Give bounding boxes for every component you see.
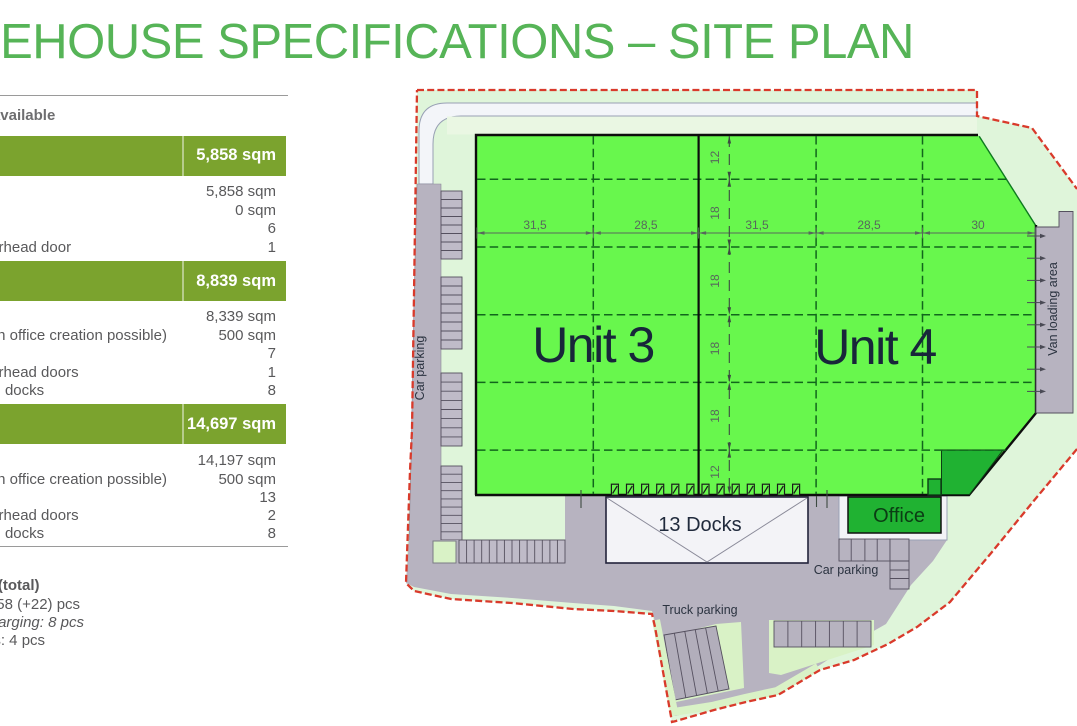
svg-text:Truck parking: Truck parking xyxy=(662,603,737,617)
svg-text:28,5: 28,5 xyxy=(634,218,658,232)
svg-text:30: 30 xyxy=(971,218,985,232)
svg-text:Office: Office xyxy=(873,505,925,527)
svg-text:12: 12 xyxy=(708,151,722,165)
svg-text:Van loading area: Van loading area xyxy=(1046,262,1060,356)
svg-text:18: 18 xyxy=(708,409,722,423)
svg-text:Unit 4: Unit 4 xyxy=(814,319,936,375)
svg-text:31,5: 31,5 xyxy=(745,218,769,232)
svg-text:28,5: 28,5 xyxy=(857,218,881,232)
svg-text:Unit 3: Unit 3 xyxy=(532,317,654,373)
svg-text:12: 12 xyxy=(708,465,722,479)
svg-text:18: 18 xyxy=(708,342,722,356)
svg-text:18: 18 xyxy=(708,274,722,288)
svg-text:13 Docks: 13 Docks xyxy=(658,514,741,536)
svg-text:Car parking: Car parking xyxy=(413,336,427,401)
svg-text:18: 18 xyxy=(708,206,722,220)
svg-text:Car parking: Car parking xyxy=(814,563,879,577)
svg-text:31,5: 31,5 xyxy=(523,218,547,232)
